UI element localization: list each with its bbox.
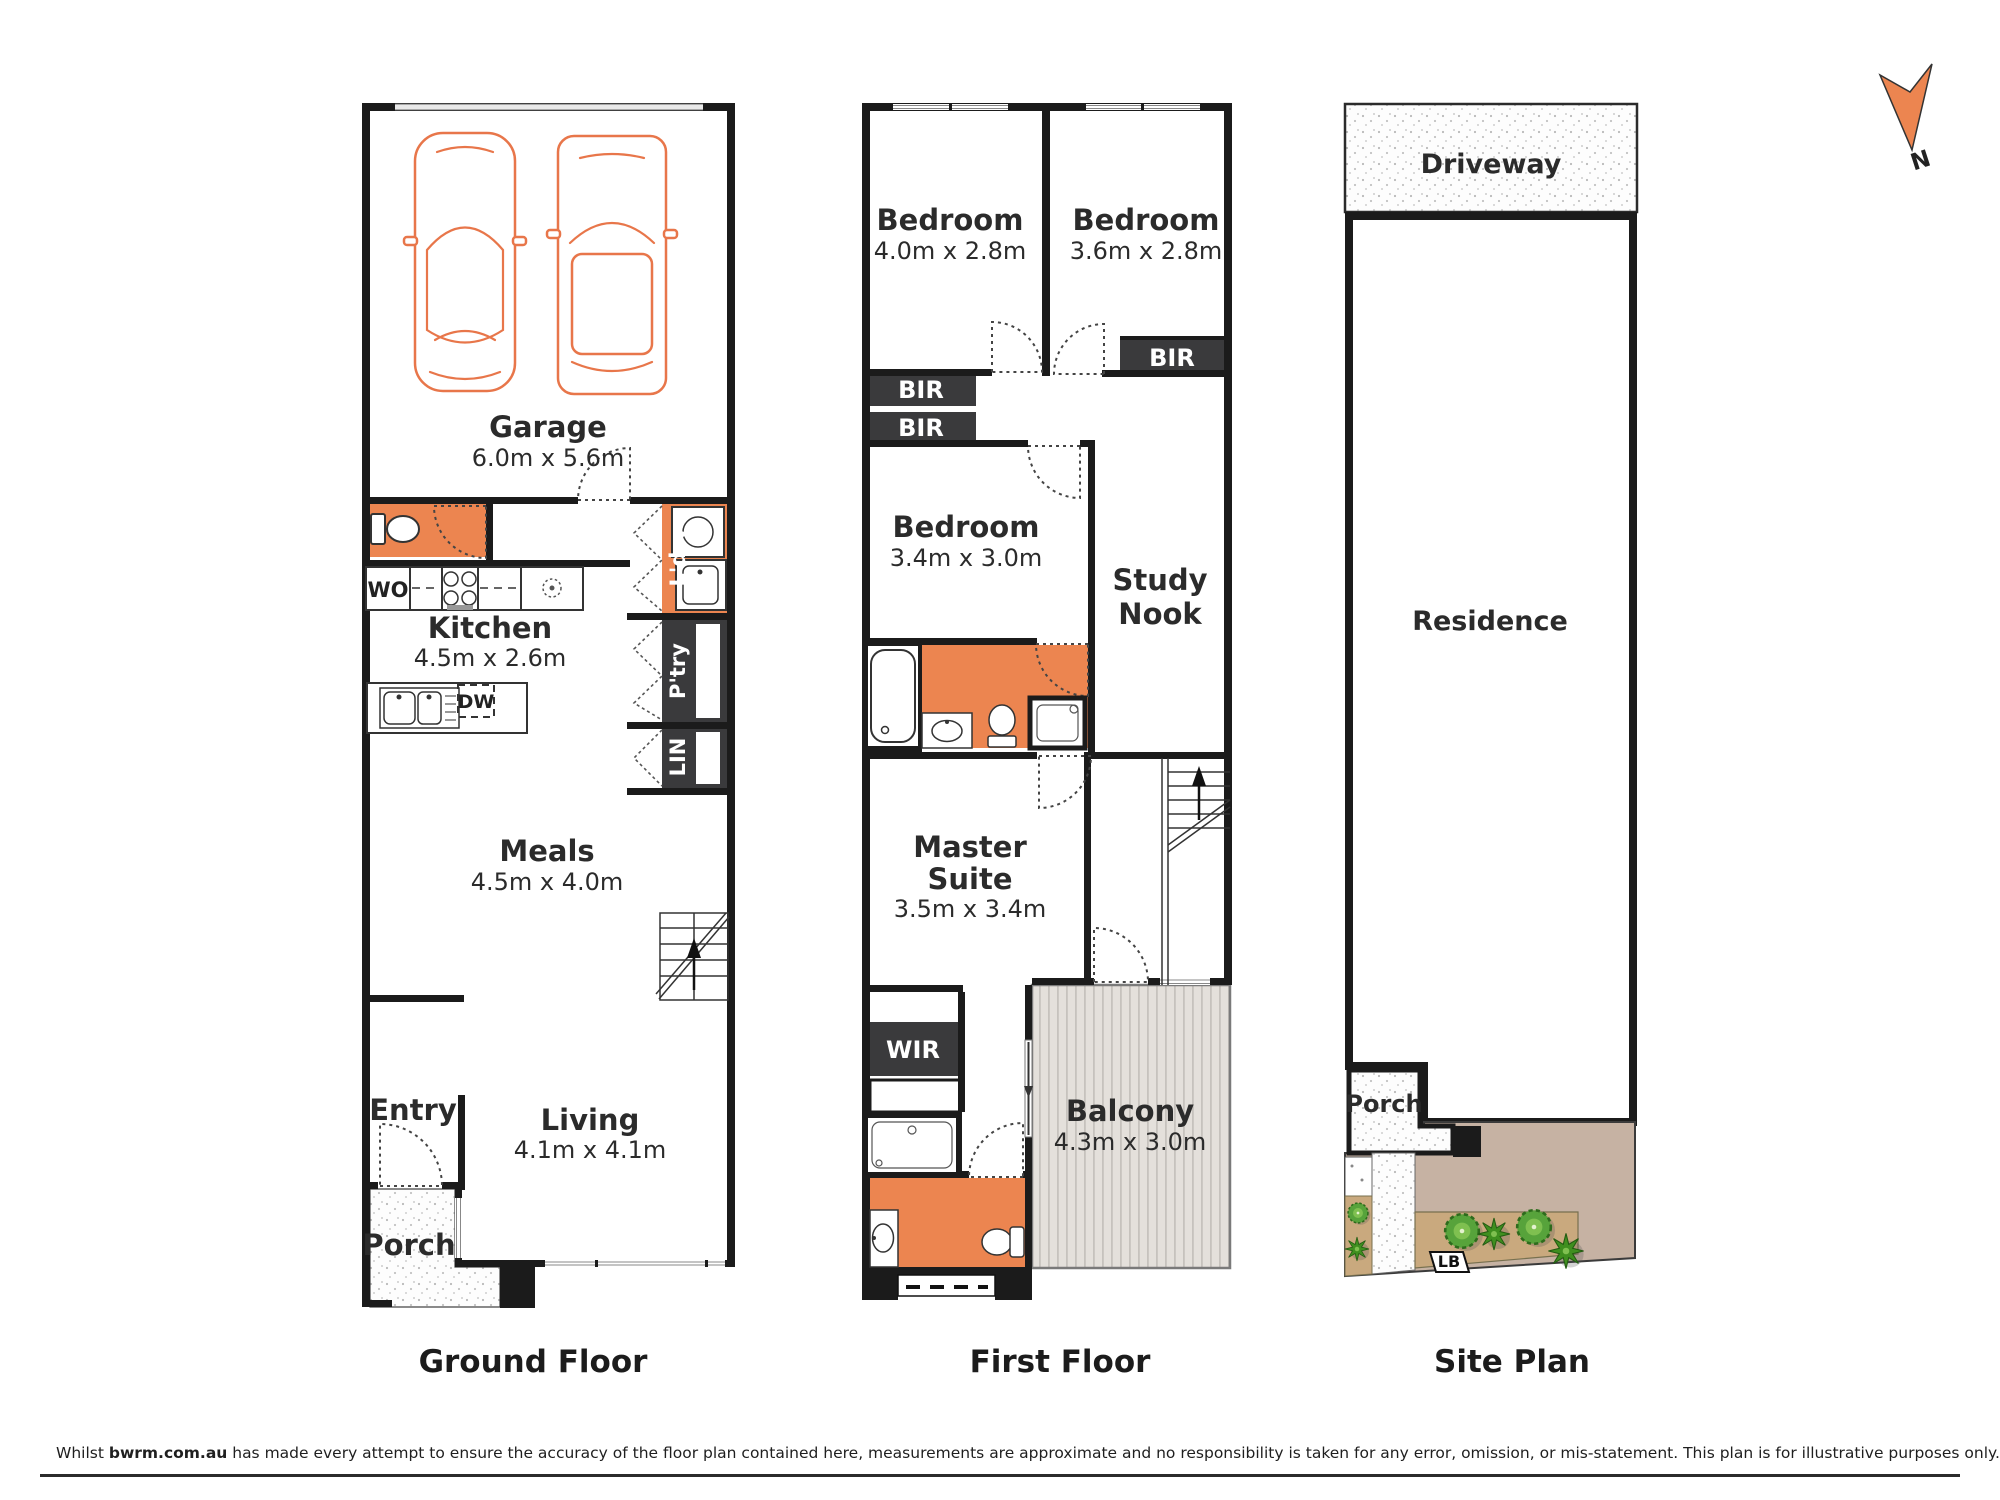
letterbox: LB	[1430, 1252, 1469, 1272]
bir-label: BIR	[898, 376, 944, 404]
toilet-icon	[988, 705, 1016, 747]
master-door-swing	[1039, 756, 1091, 808]
living-dims: 4.1m x 4.1m	[514, 1136, 667, 1164]
basin-icon	[870, 1210, 898, 1267]
site-path	[1372, 1153, 1415, 1274]
plant-icon	[1478, 1218, 1510, 1250]
shower-icon	[862, 1112, 962, 1178]
first-floor-caption: First Floor	[970, 1344, 1152, 1380]
residence-outline	[1349, 216, 1633, 1122]
linen-shelf	[696, 732, 720, 784]
staircase	[656, 913, 729, 1000]
disclaimer-brand: bwrm.com.au	[109, 1444, 227, 1462]
first-floor-plan: Bedroom 4.0m x 2.8m Bedroom 3.6m x 2.8m …	[862, 103, 1232, 1380]
bathtub-icon	[862, 640, 922, 752]
plant-icon	[1548, 1233, 1583, 1268]
bedroom4-door-swing	[1028, 446, 1080, 498]
fridge-space-icon	[521, 567, 583, 610]
porch-window	[455, 1198, 462, 1258]
floor-plan-page: DW	[0, 0, 2000, 1500]
laundry-label: L'dry	[666, 527, 690, 586]
bedroom-window	[893, 104, 1008, 110]
car-icon	[547, 136, 677, 394]
disclaimer-prefix: Whilst	[56, 1444, 109, 1462]
site-plan-caption: Site Plan	[1434, 1344, 1590, 1380]
disclaimer-text: Whilst bwrm.com.au has made every attemp…	[56, 1444, 1946, 1462]
shower-icon	[1030, 698, 1085, 748]
plant-icon	[1345, 1237, 1369, 1261]
bedroom3-label: Bedroom	[1073, 203, 1220, 237]
garage-label: Garage	[489, 410, 607, 444]
double-sink-icon	[380, 688, 459, 728]
toilet-icon	[982, 1227, 1024, 1257]
study-nook-label-1: Study	[1112, 563, 1207, 597]
letterbox-label: LB	[1438, 1252, 1460, 1271]
stairs-up-arrow	[687, 938, 701, 958]
porch-label: Porch	[362, 1228, 455, 1262]
north-arrow-icon	[1880, 64, 1932, 150]
garage-door	[390, 103, 708, 111]
bottom-divider	[40, 1474, 1960, 1477]
site-utility-box	[1345, 1157, 1372, 1196]
car-icon	[404, 133, 526, 391]
meals-dims: 4.5m x 4.0m	[471, 868, 624, 896]
entry-label: Entry	[369, 1093, 457, 1127]
study-nook-label-2: Nook	[1118, 597, 1202, 631]
balcony-dims: 4.3m x 3.0m	[1054, 1128, 1207, 1156]
driveway-label: Driveway	[1421, 149, 1562, 180]
bedroom2-dims: 4.0m x 2.8m	[874, 237, 1027, 265]
laundry-bifold-door	[634, 506, 662, 611]
balcony-door-swing	[1094, 928, 1148, 982]
linen-bifold-door	[634, 730, 662, 786]
living-window	[545, 1260, 725, 1267]
bedroom3-dims: 3.6m x 2.8m	[1070, 237, 1223, 265]
bir-label: BIR	[1149, 344, 1195, 372]
bedroom4-label: Bedroom	[893, 510, 1040, 544]
stairs-up-arrow	[1192, 766, 1206, 786]
site-porch-step	[1453, 1126, 1481, 1157]
floor-plan-canvas: DW	[0, 0, 2000, 1500]
balcony-sliding-door	[1024, 1040, 1033, 1137]
ground-floor-plan: DW	[362, 103, 735, 1380]
balcony-label: Balcony	[1066, 1094, 1194, 1128]
basin-icon	[922, 713, 972, 748]
north-label: N	[1908, 146, 1934, 177]
north-arrow: N	[1880, 64, 1934, 176]
bedroom3-door-swing	[1054, 324, 1104, 374]
master-label-2: Suite	[927, 862, 1012, 896]
meals-label: Meals	[499, 834, 594, 868]
pantry-label: P'try	[666, 643, 690, 699]
staircase	[1162, 758, 1230, 985]
dishwasher-label: DW	[458, 691, 495, 713]
bir-label: BIR	[898, 414, 944, 442]
kitchen-island: DW	[367, 683, 527, 733]
ground-floor-caption: Ground Floor	[419, 1344, 649, 1380]
cooktop-icon	[442, 567, 478, 610]
ensuite-window	[898, 1275, 995, 1296]
disclaimer-suffix: has made every attempt to ensure the acc…	[227, 1444, 2000, 1462]
wir-shelf	[870, 1080, 960, 1112]
residence-label: Residence	[1412, 606, 1568, 637]
bedroom2-label: Bedroom	[877, 203, 1024, 237]
ensuite-door-swing	[969, 1123, 1023, 1177]
kitchen-dims: 4.5m x 2.6m	[414, 644, 567, 672]
toilet-icon	[371, 514, 419, 544]
site-plan: LB Driveway Residence Porch Site Plan	[1345, 104, 1637, 1380]
bedroom4-dims: 3.4m x 3.0m	[890, 544, 1043, 572]
garage-dims: 6.0m x 5.6m	[472, 444, 625, 472]
master-label-1: Master	[913, 830, 1027, 864]
living-label: Living	[541, 1103, 640, 1137]
bedroom-window	[1086, 104, 1200, 110]
master-dims: 3.5m x 3.4m	[894, 895, 1047, 923]
wir-label: WIR	[886, 1036, 940, 1064]
site-porch-label: Porch	[1345, 1090, 1422, 1118]
bedroom2-door-swing	[992, 322, 1042, 372]
wall-oven-label: WO	[367, 578, 408, 602]
linen-label: LIN	[666, 738, 690, 777]
pantry-shelf	[696, 624, 720, 718]
front-door-swing	[380, 1124, 442, 1186]
pantry-bifold-door	[634, 622, 662, 720]
kitchen-label: Kitchen	[428, 611, 552, 645]
